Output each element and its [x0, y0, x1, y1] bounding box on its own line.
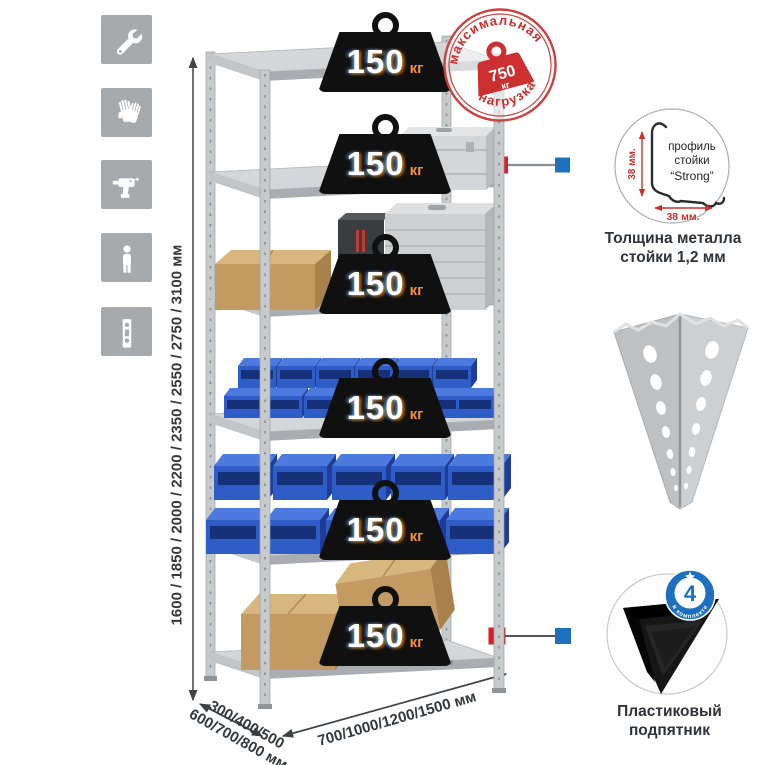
shelf-load-weight: 150кг	[318, 358, 452, 438]
post-profile-detail: 38 мм. 38 мм. профиль стойки “Strong”	[613, 107, 731, 225]
angle-post-image	[600, 302, 760, 524]
shelf-load-value: 150	[347, 389, 405, 427]
weight-handle	[372, 586, 399, 613]
foot-callout-blue-marker	[555, 628, 571, 644]
set-count-badge: 4 в комплекте	[663, 568, 717, 622]
shelf-load-value: 150	[347, 617, 405, 655]
profile-dim-horizontal: 38 мм.	[666, 211, 699, 223]
shelf-load-value: 150	[347, 511, 405, 549]
weight-handle	[372, 480, 399, 507]
cardboard-box	[215, 250, 331, 310]
shelf-load-unit: кг	[410, 60, 424, 77]
profile-caption-line2: стойки 1,2 мм	[593, 248, 753, 267]
profile-label-line1: профиль	[668, 141, 716, 153]
shelf-load-weight: 150кг	[318, 234, 452, 314]
weight-handle	[372, 114, 399, 141]
shelf-load-unit: кг	[410, 282, 424, 299]
shelf-load-value: 150	[347, 43, 405, 81]
shelf-load-weight: 150кг	[318, 586, 452, 666]
weight-handle	[372, 12, 399, 39]
profile-callout-blue-marker	[555, 158, 570, 173]
badge-count: 4	[684, 581, 697, 606]
profile-dim-vertical: 38 мм.	[627, 148, 638, 180]
foot-caption-line1: Пластиковый	[597, 702, 742, 721]
profile-caption: Толщина металла стойки 1,2 мм	[593, 229, 753, 268]
height-options-label: 1600 / 1850 / 2000 / 2200 / 2350 / 2550 …	[169, 245, 186, 626]
shelf-load-value: 150	[347, 265, 405, 303]
foot-caption: Пластиковый подпятник	[597, 702, 742, 741]
profile-label-line2: стойки	[674, 155, 709, 167]
profile-label-line3: “Strong”	[670, 169, 713, 183]
foot-caption-line2: подпятник	[597, 721, 742, 740]
shelf-load-unit: кг	[410, 162, 424, 179]
product-infographic: 150кг 150кг 150кг 150кг 150кг 150кг макс…	[0, 0, 765, 765]
shelf-load-unit: кг	[410, 406, 424, 423]
weight-handle	[372, 234, 399, 261]
shelf-load-weight: 150кг	[318, 480, 452, 560]
weight-handle	[372, 358, 399, 385]
shelf-load-value: 150	[347, 145, 405, 183]
shelf-load-unit: кг	[410, 634, 424, 651]
profile-caption-line1: Толщина металла	[593, 229, 753, 248]
shelf-load-unit: кг	[410, 528, 424, 545]
shelf-load-weight: 150кг	[318, 114, 452, 194]
